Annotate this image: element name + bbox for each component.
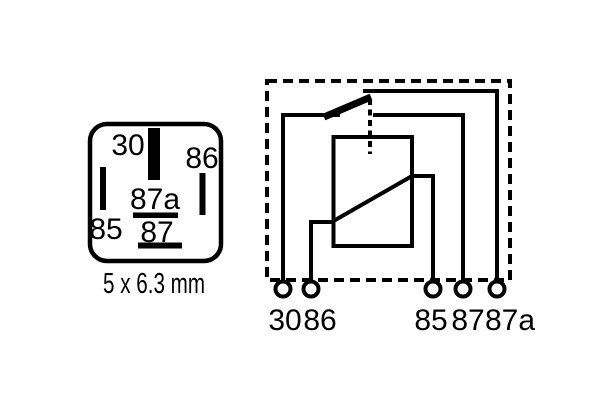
coil-diagonal xyxy=(334,176,413,221)
relay-housing-dashed-border xyxy=(267,81,510,280)
coil-box xyxy=(334,137,413,246)
relay-circuit-schematic: 30 86 85 87 87a xyxy=(267,81,535,337)
terminal-ring-85 xyxy=(426,282,441,297)
terminal-ring-87 xyxy=(456,282,471,297)
pinout-label-86: 86 xyxy=(185,142,218,175)
switch-blade xyxy=(324,97,371,117)
wire-terminal-87 xyxy=(373,115,463,282)
pin-30-blade xyxy=(148,128,160,180)
relay-pinout-diagram: 30 86 85 87a 87 5 x 6.3 mm xyxy=(89,124,221,300)
terminal-ring-87a xyxy=(490,282,505,297)
terminal-ring-86 xyxy=(304,282,319,297)
terminal-label-30: 30 xyxy=(268,304,301,337)
relay-diagram-canvas: 30 86 85 87a 87 5 x 6.3 mm xyxy=(0,0,600,400)
wire-terminal-85 xyxy=(412,176,433,282)
pinout-label-87a: 87a xyxy=(130,183,180,216)
terminal-size-caption: 5 x 6.3 mm xyxy=(103,268,205,300)
terminal-label-86: 86 xyxy=(303,304,336,337)
terminal-label-87: 87 xyxy=(451,304,484,337)
pin-86-blade xyxy=(200,173,206,215)
terminal-label-85: 85 xyxy=(414,304,447,337)
relay-diagram-page: 30 86 85 87a 87 5 x 6.3 mm xyxy=(0,0,600,400)
pinout-label-85: 85 xyxy=(89,213,122,246)
terminal-ring-30 xyxy=(276,282,291,297)
terminal-label-87a: 87a xyxy=(485,304,535,337)
pinout-label-30: 30 xyxy=(111,129,144,162)
pin-85-blade xyxy=(100,167,106,210)
wire-terminal-86 xyxy=(311,222,334,282)
wire-terminal-87a xyxy=(363,91,497,282)
pinout-label-87: 87 xyxy=(140,216,173,249)
